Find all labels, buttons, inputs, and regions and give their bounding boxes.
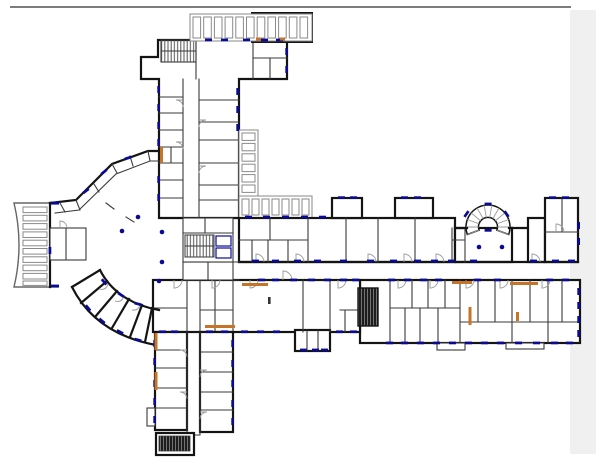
elevator [216, 248, 231, 258]
floorplan-viewer [0, 0, 600, 469]
south-wing [147, 332, 233, 455]
toolbar-separator-rule [10, 6, 571, 8]
east-stair-core [358, 288, 378, 326]
floorplan-canvas[interactable] [0, 0, 600, 469]
north-wing [141, 13, 312, 218]
elevator [216, 236, 231, 246]
south-stair-core [159, 436, 190, 451]
west-entrance-steps [14, 203, 50, 287]
